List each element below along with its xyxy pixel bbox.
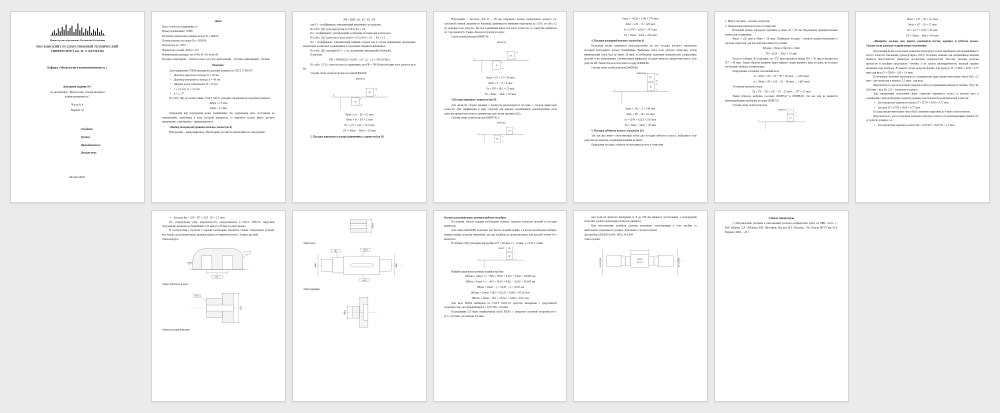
page-09-sketches-sleeve-shaft-cover[interactable]: Ø40D9Эскиз валаØ40k6Ø40k6Ø45Ø50x6Ra0,63Э… — [292, 210, 427, 402]
page-content: Расчет исполнительных размеров рабочих к… — [434, 211, 567, 401]
text-line: TS = Smax − Smin = 254 мкм — [584, 33, 697, 38]
svg-text:0: 0 — [333, 95, 334, 97]
page-content: 1. Выбор системы – система отверстия.2. … — [715, 12, 848, 202]
svg-text:Ø50H7: Ø50H7 — [638, 259, 643, 261]
svg-text:Ø90H7: Ø90H7 — [187, 263, 192, 265]
text-line: В таблице 5 К[1] находим для пробки: IT7… — [444, 242, 557, 246]
spacer — [21, 113, 134, 128]
text-line: 1.Выбор посадки внутреннего кольца с вал… — [162, 125, 275, 129]
text-line: Для определения отклонений форм отверсти… — [866, 92, 979, 101]
text-line: Nmax = 120 мкм и Nmin = 50 мкм. Подбирае… — [725, 37, 838, 46]
spacer-sleeve-sketch: Ø40D9 — [303, 215, 416, 237]
text-line: для отверстия червячного колеса Ra = 0,0… — [866, 123, 979, 128]
text-line: Строим схему полей допусков посадки Ø40L… — [303, 72, 416, 76]
svg-text:D9: D9 — [649, 77, 652, 79]
svg-text:-340: -340 — [501, 141, 504, 143]
page-02-given[interactable]: Дано:Класс точности подшипника: 0Номер п… — [151, 11, 286, 203]
page-content: при этом их диапазон измерения от 0 до 2… — [574, 211, 707, 401]
page-content: Ø40D9Эскиз валаØ40k6Ø40k6Ø45Ø50x6Ra0,63Э… — [293, 211, 426, 401]
page-08-sketches-housing-gear[interactable]: для вала Ra = 0,05 · IT7 = 0,05 · 30 = 1… — [151, 210, 286, 402]
svg-text:+64: +64 — [513, 253, 515, 255]
text-line: Таким образом, выбраны посадки: Ø50H7/u7… — [725, 95, 838, 104]
text-line: Для вала Ø50x6 выбираем по ГОСТ 8.051-81… — [444, 301, 557, 310]
text-line: Подходящим СИ будет индикаторная скоба И… — [444, 310, 557, 319]
text-line: Дано: — [162, 19, 275, 24]
page-10-gauge-calculation[interactable]: Расчет исполнительных размеров рабочих к… — [433, 210, 568, 402]
spacer — [303, 211, 416, 214]
pages-row-bottom: для вала Ra = 0,05 · IT7 = 0,05 · 30 = 1… — [0, 210, 1000, 402]
text-line: Для легкости сборки крышки с корпусом ре… — [444, 103, 557, 116]
spacer — [725, 12, 838, 19]
spacer — [21, 70, 134, 85]
reference-item: 1. Методические указания к выполнению ра… — [725, 222, 838, 235]
sketch-label-shaft: Эскиз вала — [303, 241, 416, 246]
svg-text:+35: +35 — [515, 52, 518, 54]
text-line: при этом их диапазон измерения от 0 до 2… — [584, 215, 697, 224]
text-line: Посадка сопрягаемая – зубчатое колесо (п… — [162, 57, 275, 62]
text-line: По табл. 17[1] с учетом класса подшипник… — [303, 63, 416, 72]
gauge-tolerance-diagram: Ø50H70ПР+13+9НЕ+64+60 — [444, 247, 557, 269]
svg-text:Ø40D9/k6: Ø40D9/k6 — [636, 72, 647, 75]
text-line: 3.Посадка крышки с корпусом (по D) — [444, 98, 557, 102]
text-line: Так как вал имеет ответственный уступ дл… — [584, 134, 697, 143]
svg-text:+142: +142 — [656, 74, 660, 76]
tolerance-diagram-90H7-l0: Ø90H7/l00H7+350l00-15 — [444, 40, 557, 75]
text-line: для вала Ra = 0,05 · IT7 = 0,05 · 30 = 1… — [162, 215, 275, 220]
text-line: Нагружение – местное. Для D = 90 мм нару… — [444, 18, 557, 35]
svg-text:0: 0 — [474, 58, 475, 60]
page-06-interference-fit[interactable]: 1. Выбор системы – система отверстия.2. … — [714, 11, 849, 203]
text-line: Шероховатость для посадочных поверхносте… — [866, 84, 979, 93]
page-content: Министерство образования Российской Феде… — [11, 12, 144, 202]
text-line: TN = Nmax − Nmin = 60 мкм — [866, 33, 979, 38]
text-line: Отклонения форм посадочных поверхностей … — [866, 49, 979, 75]
text-line: Определим вид нагружения колец подшипник… — [162, 112, 275, 125]
svg-text:Ø90d11: Ø90d11 — [344, 310, 346, 315]
text-line: Для отверстия Ø50H7 возможно рассчитать … — [444, 229, 557, 242]
svg-text:+80: +80 — [656, 80, 659, 82]
svg-text:+18: +18 — [374, 89, 377, 91]
gear-sketch: Ø50x6Ø120 — [162, 288, 275, 326]
cover-sketch: Ø90d11 — [303, 293, 416, 329]
svg-text:+25: +25 — [794, 115, 796, 117]
page-07-form-and-roughness[interactable]: Nmax = 147 − 30 = 117 мкмNmin = 87 − 30 … — [855, 11, 990, 203]
page-03-inner-ring-fit[interactable]: PR = R/(B−2r) · K1 · K2 · K3где K1 – коэ… — [292, 11, 427, 203]
text-line: 4. Посадка распорной втулки с валом (по … — [584, 39, 697, 43]
svg-text:0: 0 — [478, 258, 479, 260]
text-line: Нагружение – циркуляционное. Необходимо … — [162, 130, 275, 134]
text-line: Эскиз пробки: — [584, 237, 697, 242]
thumbnail-sheet: Министерство образования Российской Феде… — [0, 0, 1000, 413]
text-line: Полученные значения округляем по стандар… — [866, 75, 979, 84]
page-content: PR = R/(B−2r) · K1 · K2 · K3где K1 – коэ… — [293, 12, 426, 202]
svg-text:k6: k6 — [369, 92, 371, 94]
svg-text:Ø90H7/l0: Ø90H7/l0 — [496, 42, 507, 44]
plug-gauge-sketch: Ø50H7ПР—НЕØ50,063-0,004Ø50,114-0,004 — [584, 243, 697, 278]
text-line: TS = Smax − Smin = 78 мкм — [584, 123, 697, 128]
sketch-label-cover: Эскиз крышки — [303, 287, 416, 292]
svg-text:Ø50H7/u7: Ø50H7/u7 — [777, 110, 787, 112]
text-line: «Измерить: кольца, вал, корпус, распорну… — [866, 40, 979, 49]
page-05-spacer-sleeve-fit[interactable]: Smax = +(220 + 154) = 374 мкмSmin = 120 … — [573, 11, 708, 203]
text-line: Распорная втулка надевается непосредстве… — [584, 44, 697, 66]
svg-text:Ø40L0/k6: Ø40L0/k6 — [355, 78, 366, 81]
page-11-plug-gauge-sketch[interactable]: при этом их диапазон измерения от 0 до 2… — [573, 210, 708, 402]
svg-text:l0: l0 — [495, 65, 497, 67]
svg-text:d11: d11 — [495, 139, 498, 141]
text-line: β = 2...3° — [162, 92, 275, 97]
spacer — [21, 54, 134, 66]
tolerance-diagram-40L0-k6: Ø40L0/k60k6+18+2L00-12 — [303, 77, 416, 112]
page-content: Дано:Класс точности подшипника: 0Номер п… — [152, 12, 285, 202]
svg-text:-120: -120 — [501, 136, 504, 138]
page-content: Нагружение – местное. Для D = 90 мм нару… — [434, 12, 567, 202]
text-line: Решение: — [162, 63, 275, 68]
sketch-label-sleeve: Эскиз распорной втулки — [162, 328, 275, 333]
svg-text:+60: +60 — [513, 259, 515, 261]
page-04-outer-ring-fit[interactable]: Нагружение – местное. Для D = 90 мм нару… — [433, 11, 568, 203]
credentials-student: Студент: — [81, 128, 134, 131]
text-line: TS = Smax − Smin = 50 мкм — [444, 92, 557, 97]
page-content: Smax = +(220 + 154) = 374 мкмSmin = 120 … — [574, 12, 707, 202]
text-line: Шероховатость для посадочных поверхносте… — [866, 114, 979, 123]
svg-text:Ø120: Ø120 — [240, 306, 242, 310]
sketch-label-housing: Эскиз корпуса — [162, 237, 275, 242]
text-line: Исходный размер определен заданием и рав… — [725, 29, 838, 38]
svg-text:0: 0 — [478, 133, 479, 135]
text-line: K3 – коэффициент, учитывающий влияние ос… — [303, 40, 416, 49]
svg-text:+9: +9 — [513, 251, 515, 253]
text-line: TN = Nmax − Nmin = 19 мкм — [303, 129, 416, 134]
svg-text:+35: +35 — [513, 128, 515, 130]
page-content: Список литературы1. Методические указани… — [715, 211, 848, 401]
svg-text:-15: -15 — [501, 68, 503, 70]
text-line: Последним этапом задания необходимо выбр… — [444, 220, 557, 229]
credentials-teacher: Преподаватель: — [81, 144, 134, 147]
text-line: По стандартному ряду шероховатости, опре… — [162, 220, 275, 229]
svg-text:Ø50,063-0,004: Ø50,063-0,004 — [600, 258, 602, 268]
tolerance-diagram-50H7-u7: Ø50H7/u70u7+112+87H7+250 — [725, 108, 838, 130]
svg-text:Ø40D9: Ø40D9 — [372, 223, 374, 229]
spacer — [21, 159, 134, 175]
svg-text:+18: +18 — [656, 83, 659, 85]
svg-text:0: 0 — [360, 99, 361, 101]
credentials-discipline: Дисциплина: — [81, 151, 134, 154]
text-line: для вала IT = IT7/8 = 30/8 = 3,75 мкм — [866, 105, 979, 110]
svg-text:-12: -12 — [360, 105, 362, 107]
tolerance-diagram-90H7-d11: Ø90H7/d110H7+350d11-120-340 — [444, 121, 557, 143]
text-line: Тогда по таблице 4[1] находим, что 37,5 … — [725, 57, 838, 70]
page-content: Nmax = 147 − 30 = 117 мкмNmin = 87 − 30 … — [856, 12, 989, 202]
city-year: Москва 2004г. — [21, 176, 134, 180]
text-line: 2. Посадка наружного кольца подшипника с… — [303, 135, 416, 139]
svg-text:+87: +87 — [794, 112, 796, 114]
svg-text:0: 0 — [501, 62, 502, 64]
pages-row-top: Министерство образования Российской Феде… — [0, 11, 1000, 203]
svg-text:Ø50,114-0,004: Ø50,114-0,004 — [679, 258, 681, 268]
page-01-title[interactable]: Министерство образования Российской Феде… — [10, 11, 145, 203]
page-12-references[interactable]: Список литературы1. Методические указани… — [714, 210, 849, 402]
page-content: для вала Ra = 0,05 · IT7 = 0,05 · 30 = 1… — [152, 211, 285, 401]
sketch-label-gear: Эскиз зубчатого колеса — [162, 282, 275, 287]
text-line: 5. Посадка зубчатого колеса с валом (по … — [584, 129, 697, 133]
svg-text:+2: +2 — [374, 95, 376, 97]
housing-sketch: Ø90H70,02 А — [162, 243, 275, 281]
text-line: Схема полей допусков Ø90H7/l0: — [444, 35, 557, 39]
shaft-sketch: Ø40k6Ø40k6Ø45Ø50x6Ra0,63 — [303, 247, 416, 284]
text-line: Строим схему полей допусков Ø40D9/k6: — [584, 66, 697, 70]
text-line: Определим посадку с натягом по методике … — [584, 143, 697, 147]
spacer — [21, 12, 134, 20]
credentials-group: Группа: — [81, 136, 134, 139]
university-emblem — [21, 21, 134, 37]
text-line: Строим схему полей допусков Ø90H7/d11: — [444, 116, 557, 120]
svg-text:Ø50H7: Ø50H7 — [497, 248, 505, 250]
spacer — [162, 12, 275, 18]
svg-text:0: 0 — [759, 120, 760, 122]
tolerance-diagram-40D9-k6: Ø40D9/k60D9+142+80k6+18+2 — [584, 71, 697, 106]
text-line: Строим схему полей допусков: — [725, 103, 838, 107]
svg-text:0: 0 — [614, 89, 615, 91]
text-line: В соответствии с пунктом 3 задания необх… — [162, 229, 275, 238]
text-line: При изготовлении калибров допуски указыв… — [584, 224, 697, 233]
svg-text:Ø90H7/d11: Ø90H7/d11 — [495, 123, 505, 125]
